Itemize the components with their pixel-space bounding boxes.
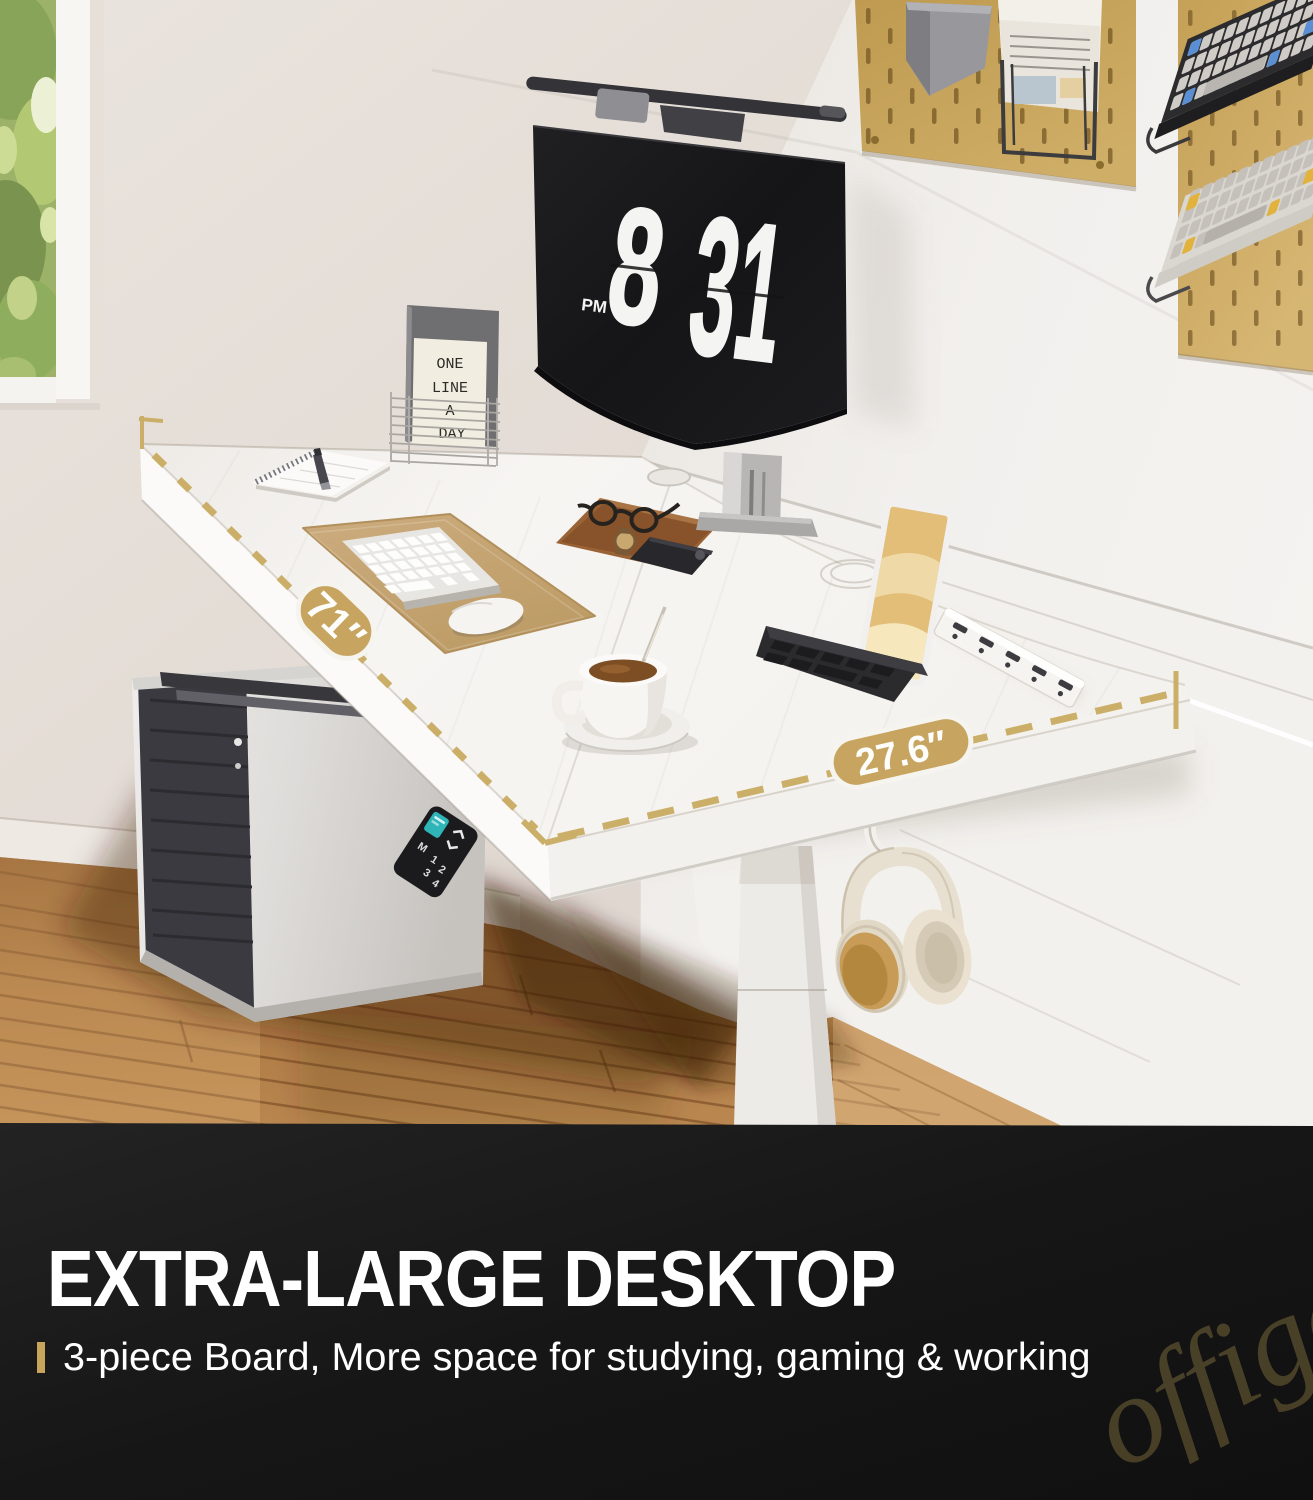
- svg-text:A: A: [445, 403, 454, 420]
- svg-text:LINE: LINE: [432, 380, 468, 397]
- svg-text:PM: PM: [580, 295, 608, 317]
- svg-text:ONE: ONE: [436, 356, 463, 373]
